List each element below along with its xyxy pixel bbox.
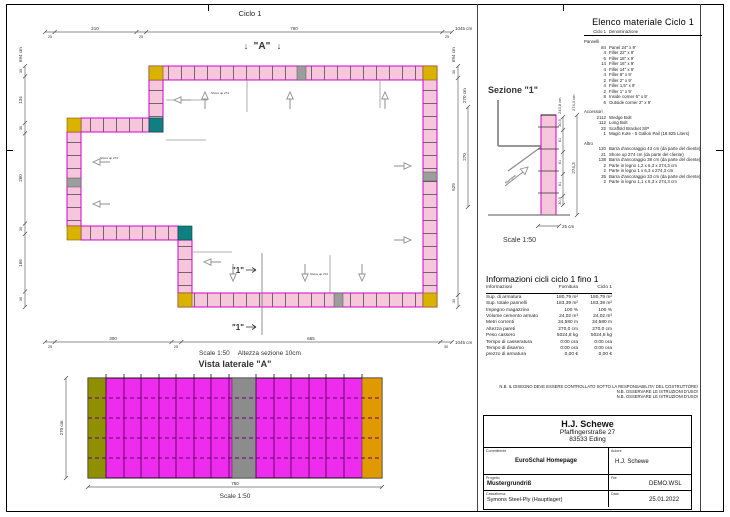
dim-label: 134 xyxy=(18,96,23,104)
svg-text:243,8 cm: 243,8 cm xyxy=(557,97,562,114)
dim-total-label: 694 cm xyxy=(18,47,23,62)
section-dim-labels: 30,5 61 61 61 30,5 243,8 cm xyxy=(557,97,562,205)
plan-title: Ciclo 1 xyxy=(239,9,262,18)
note-line: N.B. OSSERVARE LE ISTRUZIONI D'USO! xyxy=(428,394,698,399)
svg-text:Shore up 274: Shore up 274 xyxy=(211,91,229,95)
frame-tick xyxy=(563,4,564,11)
section-marker-a: "A" xyxy=(254,41,271,52)
drawing-sheet: Ciclo 1 ↓ "A" ↓ 25 210 25 760 25 1045 cm… xyxy=(0,0,730,517)
dim-total-label: 694 cm xyxy=(451,47,456,62)
cycle-info-title: Informazioni cicli ciclo 1 fino 1 xyxy=(486,276,612,282)
field-label: File xyxy=(611,476,617,480)
section-title: Sezione "1" xyxy=(488,85,538,95)
svg-text:Shore up 274: Shore up 274 xyxy=(100,156,118,160)
section-overall-dim: 274,3 274,3 cm xyxy=(571,94,579,217)
dim-chain-bottom: 25 300 25 665 30 1045 cm xyxy=(43,336,473,349)
field-value: Mustergrundriß xyxy=(484,475,608,487)
dim-label: 30 xyxy=(452,299,456,303)
section-wall xyxy=(538,115,559,215)
dim-label: 25 xyxy=(139,35,143,39)
lateral-scale-note: Scale 1:50 xyxy=(220,493,251,500)
col-header-fornitura: Fornitura xyxy=(544,285,578,291)
dim-label: 760 xyxy=(231,481,239,486)
filler-panels xyxy=(67,66,437,307)
field-label: Progetto xyxy=(486,476,500,480)
dim-chain-left: 30 134 30 260 30 166 30 694 cm xyxy=(18,47,27,309)
field-committente: Committente EuroSchal Homepage xyxy=(484,447,608,474)
floor-plan-drawing: Ciclo 1 ↓ "A" ↓ 25 210 25 760 25 1045 cm… xyxy=(0,0,480,517)
svg-text:61: 61 xyxy=(558,182,562,186)
dim-label: 25 xyxy=(445,35,449,39)
field-progetto: Progetto Mustergrundriß xyxy=(484,474,608,490)
material-list-header: Ciclo 1 Denominazione xyxy=(584,29,702,37)
arrow-down-icon: ↓ xyxy=(244,41,249,51)
col-header-name: Denominazione xyxy=(609,29,702,35)
field-data: Data 25.01.2022 xyxy=(608,490,691,507)
dim-label: 25 xyxy=(48,345,52,349)
dim-label: 210 xyxy=(91,26,99,31)
dim-total-label: 1045 cm xyxy=(455,26,473,31)
dim-label: 30 xyxy=(19,297,23,301)
field-label: Cassaforma xyxy=(486,492,505,496)
svg-text:Shore up 274: Shore up 274 xyxy=(310,272,328,276)
section-width-dim: 25 cm xyxy=(536,224,575,229)
material-row: 6Outside corner 2" x 9' xyxy=(584,100,702,106)
dim-label: 260 xyxy=(18,174,23,182)
dim-label: 760 xyxy=(290,26,298,31)
field-label: Committente xyxy=(486,449,506,453)
dim-label: 270 cm xyxy=(59,420,64,435)
dim-label: 270 xyxy=(462,153,467,161)
dim-chain-right: 30 629 30 694 cm 270 270 cm xyxy=(451,47,470,309)
info-row: prezzo di armatura0,00 €0,00 € xyxy=(486,352,612,358)
field-value: DEMO.WSL xyxy=(609,475,691,487)
dim-label: 166 xyxy=(18,259,23,267)
scaffold-bracket xyxy=(498,100,541,171)
dim-label: 30 xyxy=(19,69,23,73)
pour-arrow-label: Riempire xyxy=(504,174,517,185)
col-header-ciclo: Ciclo 1 xyxy=(578,285,612,291)
material-row: 1Magic Kote - 5 Gallon Pail (18.925 Lite… xyxy=(584,131,702,137)
material-list: Elenco materiale Ciclo 1 Ciclo 1 Denomin… xyxy=(584,20,702,185)
col-header-qty: Ciclo 1 xyxy=(584,29,609,35)
lateral-view xyxy=(88,374,382,478)
material-list-title: Elenco materiale Ciclo 1 xyxy=(584,20,702,26)
section-view-drawing: Sezione "1" Riempire 30,5 xyxy=(480,80,595,255)
col-header-info: Informazioni xyxy=(486,285,544,291)
field-label: Autore xyxy=(611,449,622,453)
section-marker-1: "1" xyxy=(232,323,244,332)
dim-label: 665 xyxy=(307,336,315,341)
svg-text:61: 61 xyxy=(558,138,562,142)
disclaimer-notes: N.B. IL DISEGNO DEVE ESSERE CONTROLLATO … xyxy=(428,384,698,399)
svg-text:30,5: 30,5 xyxy=(558,197,562,204)
dim-chain-top: 25 210 25 760 25 1045 cm xyxy=(43,26,473,39)
field-autore: Autore H.J. Schewe xyxy=(608,447,691,474)
outside-corners xyxy=(67,66,437,307)
shore-lines xyxy=(166,80,380,293)
title-block-header: H.J. Schewe Pfaffingerstraße 27 83533 Ed… xyxy=(484,416,691,447)
plan-scale-note: Scale 1:50Altezza sezione 10cm xyxy=(199,350,301,357)
svg-text:30,5: 30,5 xyxy=(558,119,562,126)
dim-label: 25 xyxy=(174,345,178,349)
cycle-info-table: Informazioni cicli ciclo 1 fino 1 Inform… xyxy=(486,276,612,359)
dim-label: 300 xyxy=(109,336,117,341)
company-street: Pfaffingerstraße 27 xyxy=(484,429,691,436)
section-scale-note: Scale 1:50 xyxy=(503,237,536,244)
field-label: Data xyxy=(611,492,619,496)
section-marker-1: "1" xyxy=(232,266,244,275)
cycle-info-header: Informazioni Fornitura Ciclo 1 xyxy=(486,285,612,293)
title-block: H.J. Schewe Pfaffingerstraße 27 83533 Ed… xyxy=(483,415,692,510)
dim-label: 30 xyxy=(452,70,456,74)
field-file: File DEMO.WSL xyxy=(608,474,691,490)
dim-label: 30 xyxy=(19,227,23,231)
company-city: 83533 Eding xyxy=(484,436,691,443)
lateral-view-title: Vista laterale "A" xyxy=(199,359,272,369)
dim-label: 270 cm xyxy=(462,88,467,103)
svg-text:25 cm: 25 cm xyxy=(562,224,575,229)
field-cassaforma: Cassaforma Symons Steel-Ply (Hauptlager) xyxy=(484,490,608,507)
svg-text:274,3 cm: 274,3 cm xyxy=(571,94,576,111)
dim-total-label: 1045 cm xyxy=(455,340,473,345)
company-name: H.J. Schewe xyxy=(484,419,691,429)
frame-tick xyxy=(716,150,723,151)
svg-text:61: 61 xyxy=(558,160,562,164)
pour-arrow-icon: Riempire xyxy=(504,167,528,186)
field-value: 25.01.2022 xyxy=(609,491,691,503)
arrow-down-icon: ↓ xyxy=(277,41,282,51)
dim-label: 30 xyxy=(444,345,448,349)
dim-label: 30 xyxy=(19,126,23,130)
inside-corners xyxy=(149,118,192,240)
dim-label: 629 xyxy=(451,183,456,191)
dim-label: 25 xyxy=(48,35,52,39)
material-row: 2Parte in legno 1,1 x 6,3 x 274,3 cm xyxy=(584,179,702,185)
svg-text:274,3: 274,3 xyxy=(571,162,576,174)
formwork-walls xyxy=(67,66,437,307)
